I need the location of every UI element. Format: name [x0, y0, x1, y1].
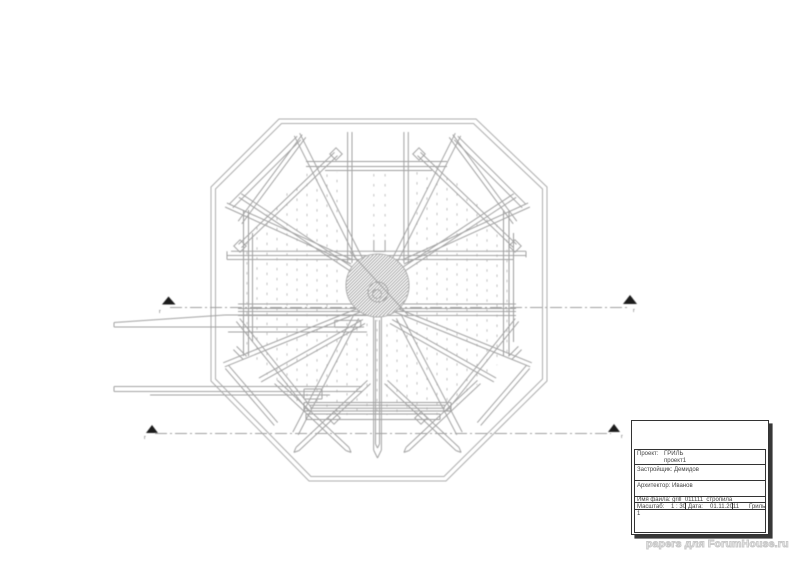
svg-text:г: г — [621, 434, 623, 440]
svg-text:г: г — [159, 309, 161, 315]
svg-text:г: г — [144, 435, 146, 441]
svg-text:г: г — [633, 308, 635, 314]
